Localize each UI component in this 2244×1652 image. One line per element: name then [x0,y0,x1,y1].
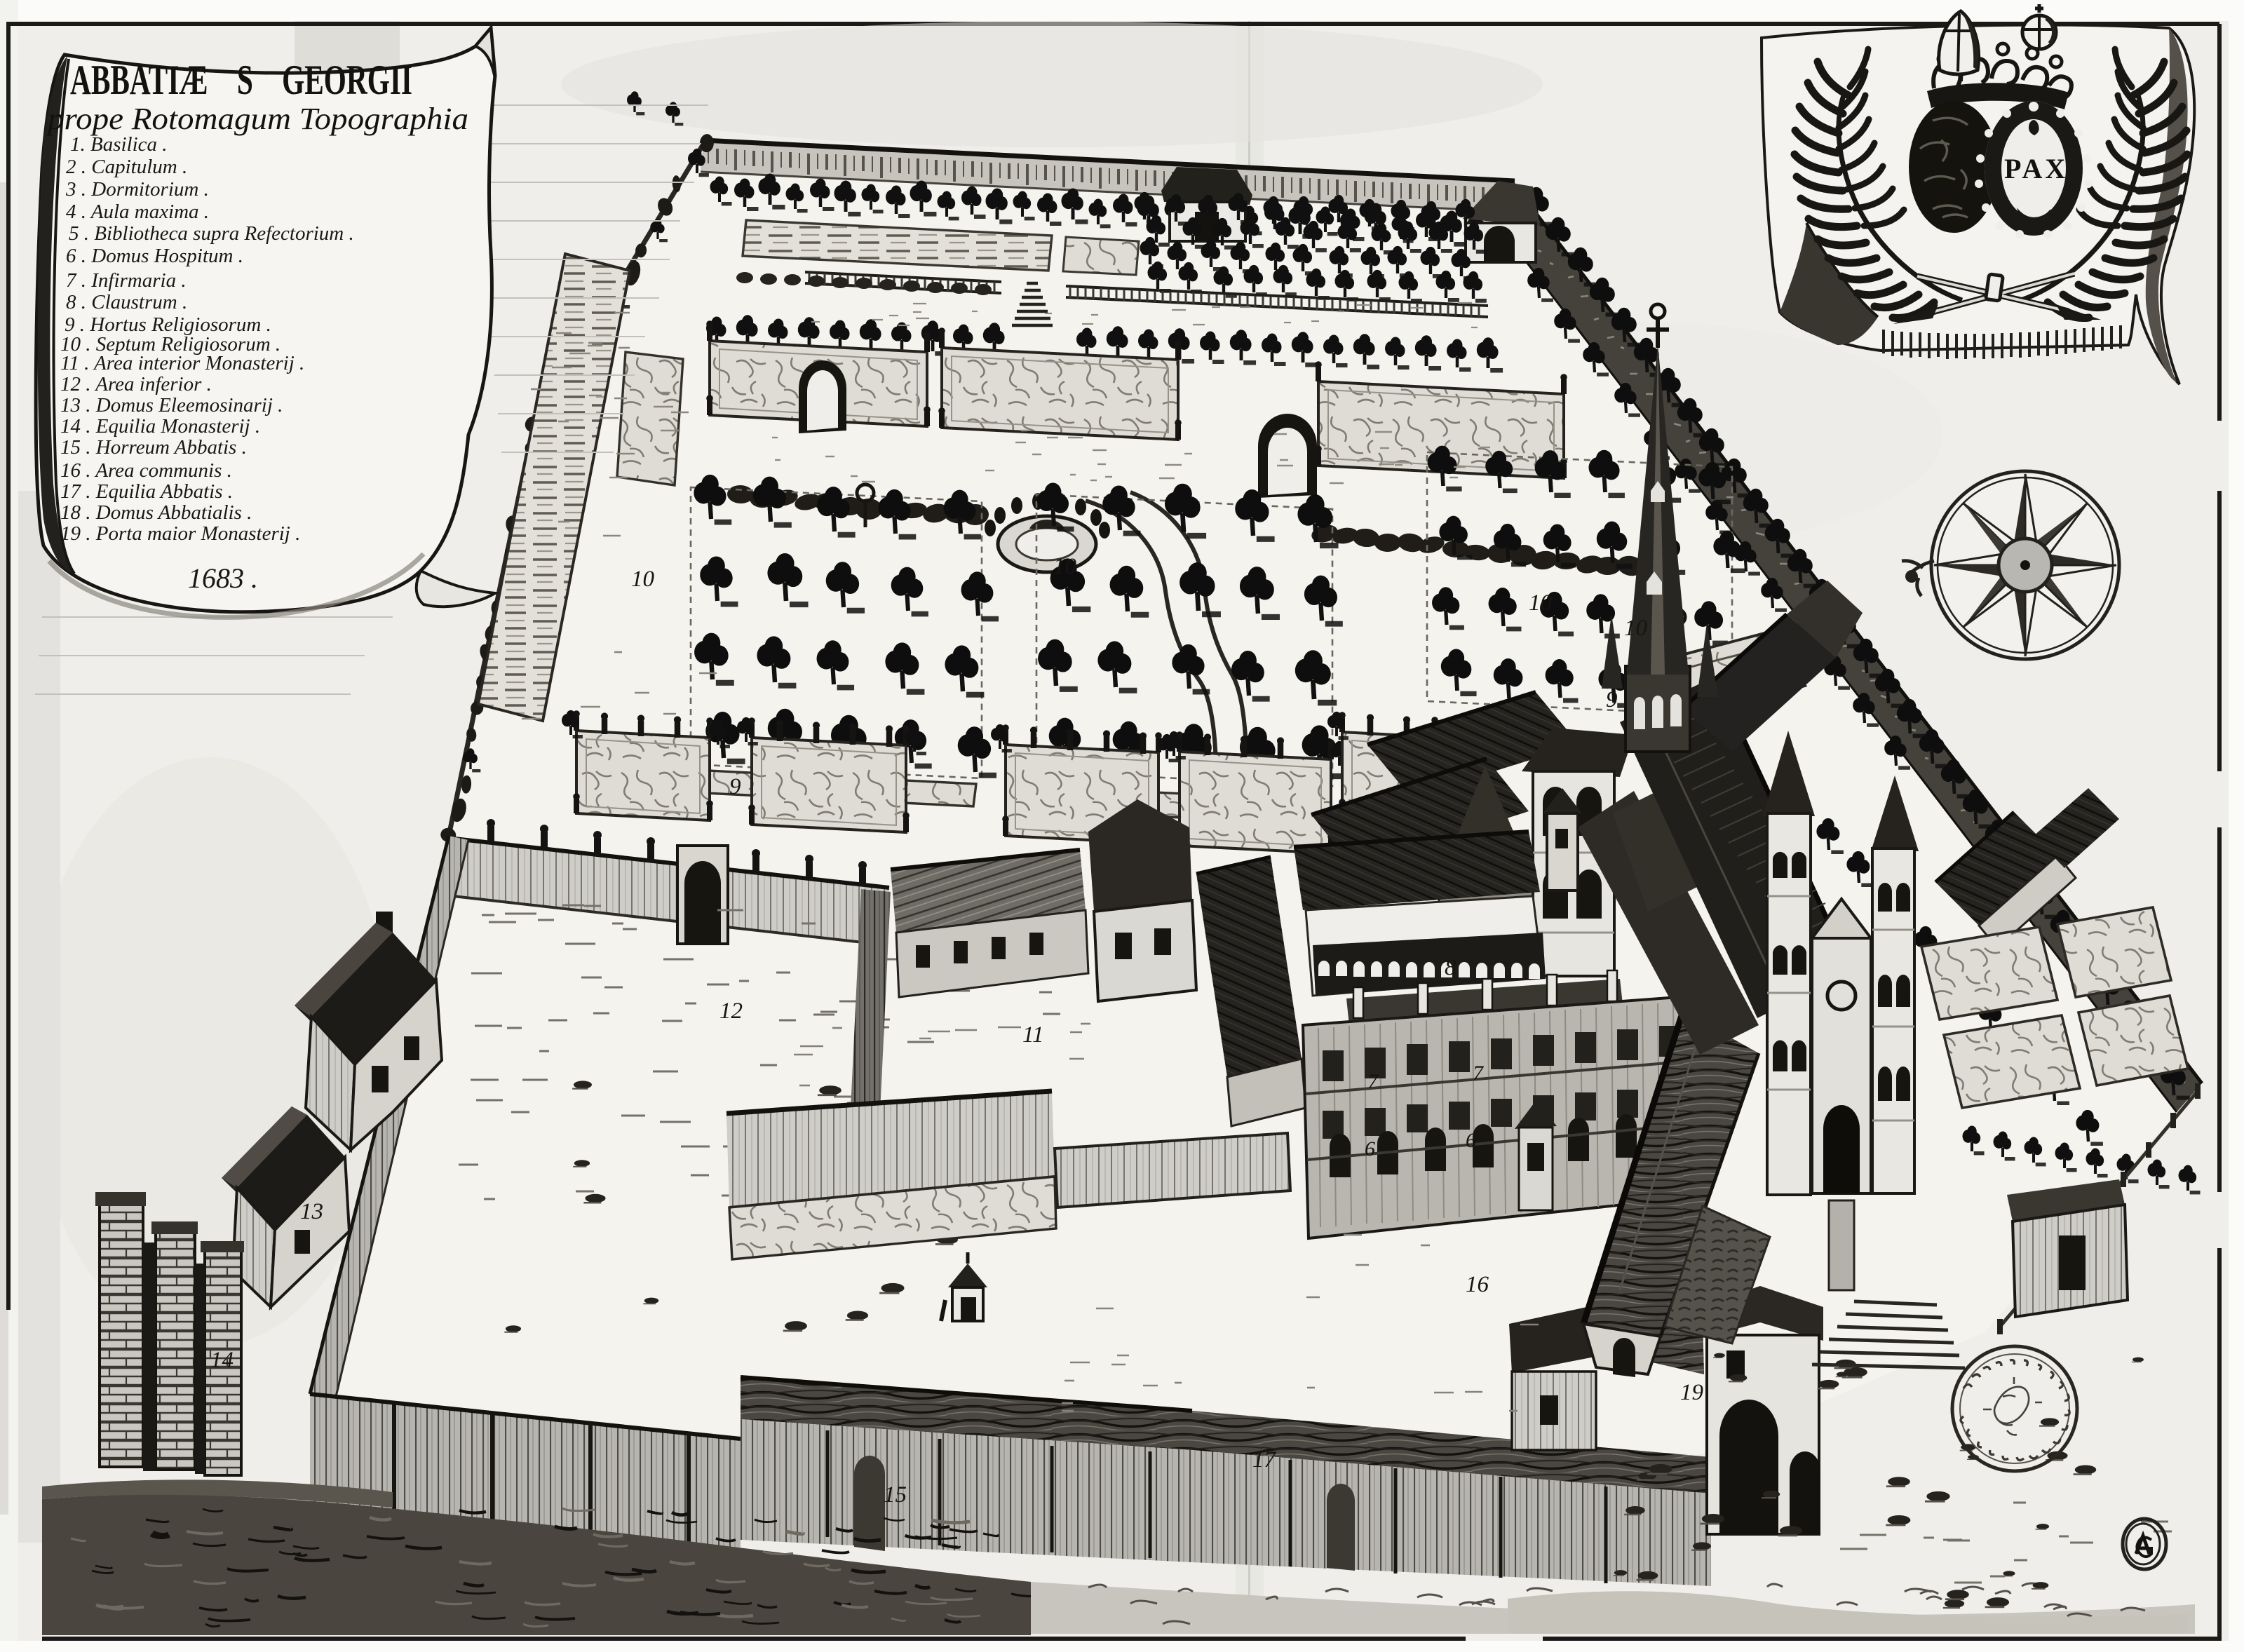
svg-text:7: 7 [1473,1062,1485,1085]
svg-text:5 . Bibliotheca supra Refector: 5 . Bibliotheca supra Refectorium . [69,222,354,245]
svg-text:7: 7 [1367,1070,1379,1093]
svg-text:13: 13 [300,1199,323,1224]
svg-text:16 . Area communis .: 16 . Area communis . [60,459,232,482]
svg-text:11: 11 [1022,1022,1044,1048]
svg-text:9: 9 [729,774,741,799]
svg-text:1. Basilica .: 1. Basilica . [70,133,168,156]
svg-text:17: 17 [1252,1447,1277,1472]
svg-text:15 . Horreum Abbatis .: 15 . Horreum Abbatis . [60,436,247,459]
svg-text:1683 .: 1683 . [188,562,258,594]
svg-text:3 . Dormitorium .: 3 . Dormitorium . [65,178,209,201]
svg-text:13 . Domus Eleemosinarij .: 13 . Domus Eleemosinarij . [60,394,283,417]
svg-text:11 . Area interior Monasterij: 11 . Area interior Monasterij . [60,352,304,374]
svg-text:12: 12 [719,998,743,1024]
svg-text:17 . Equilia Abbatis .: 17 . Equilia Abbatis . [60,480,233,503]
svg-text:8: 8 [1445,955,1456,980]
svg-text:PAX: PAX [2004,153,2068,184]
svg-text:ABBATIÆ S GEORGII: ABBATIÆ S GEORGII [70,57,412,103]
svg-text:10: 10 [1053,554,1077,579]
svg-text:6: 6 [1466,1129,1476,1152]
svg-text:8 . Claustrum .: 8 . Claustrum . [66,291,187,313]
svg-text:9: 9 [1606,687,1618,712]
svg-text:14 . Equilia Monasterij .: 14 . Equilia Monasterij . [60,415,260,438]
svg-text:10: 10 [631,567,655,592]
svg-text:12 . Area inferior .: 12 . Area inferior . [60,373,212,395]
svg-text:7 . Infirmaria .: 7 . Infirmaria . [66,269,187,292]
svg-text:4 . Aula maxima .: 4 . Aula maxima . [66,201,209,223]
svg-text:15: 15 [884,1482,907,1508]
svg-text:18 . Domus Abbatialis .: 18 . Domus Abbatialis . [60,501,252,524]
svg-text:19: 19 [1680,1380,1703,1405]
svg-text:6: 6 [1365,1137,1375,1160]
svg-text:2 . Capitulum .: 2 . Capitulum . [66,156,187,178]
svg-text:14: 14 [210,1348,234,1373]
svg-text:16: 16 [1466,1272,1489,1297]
svg-text:10: 10 [1624,616,1648,641]
svg-text:19 . Porta maior Monasterij .: 19 . Porta maior Monasterij . [60,522,300,545]
svg-text:6 . Domus Hospitum .: 6 . Domus Hospitum . [66,245,243,267]
svg-text:prope Rotomagum Topographia: prope Rotomagum Topographia [46,102,468,136]
svg-text:10: 10 [1529,590,1553,616]
